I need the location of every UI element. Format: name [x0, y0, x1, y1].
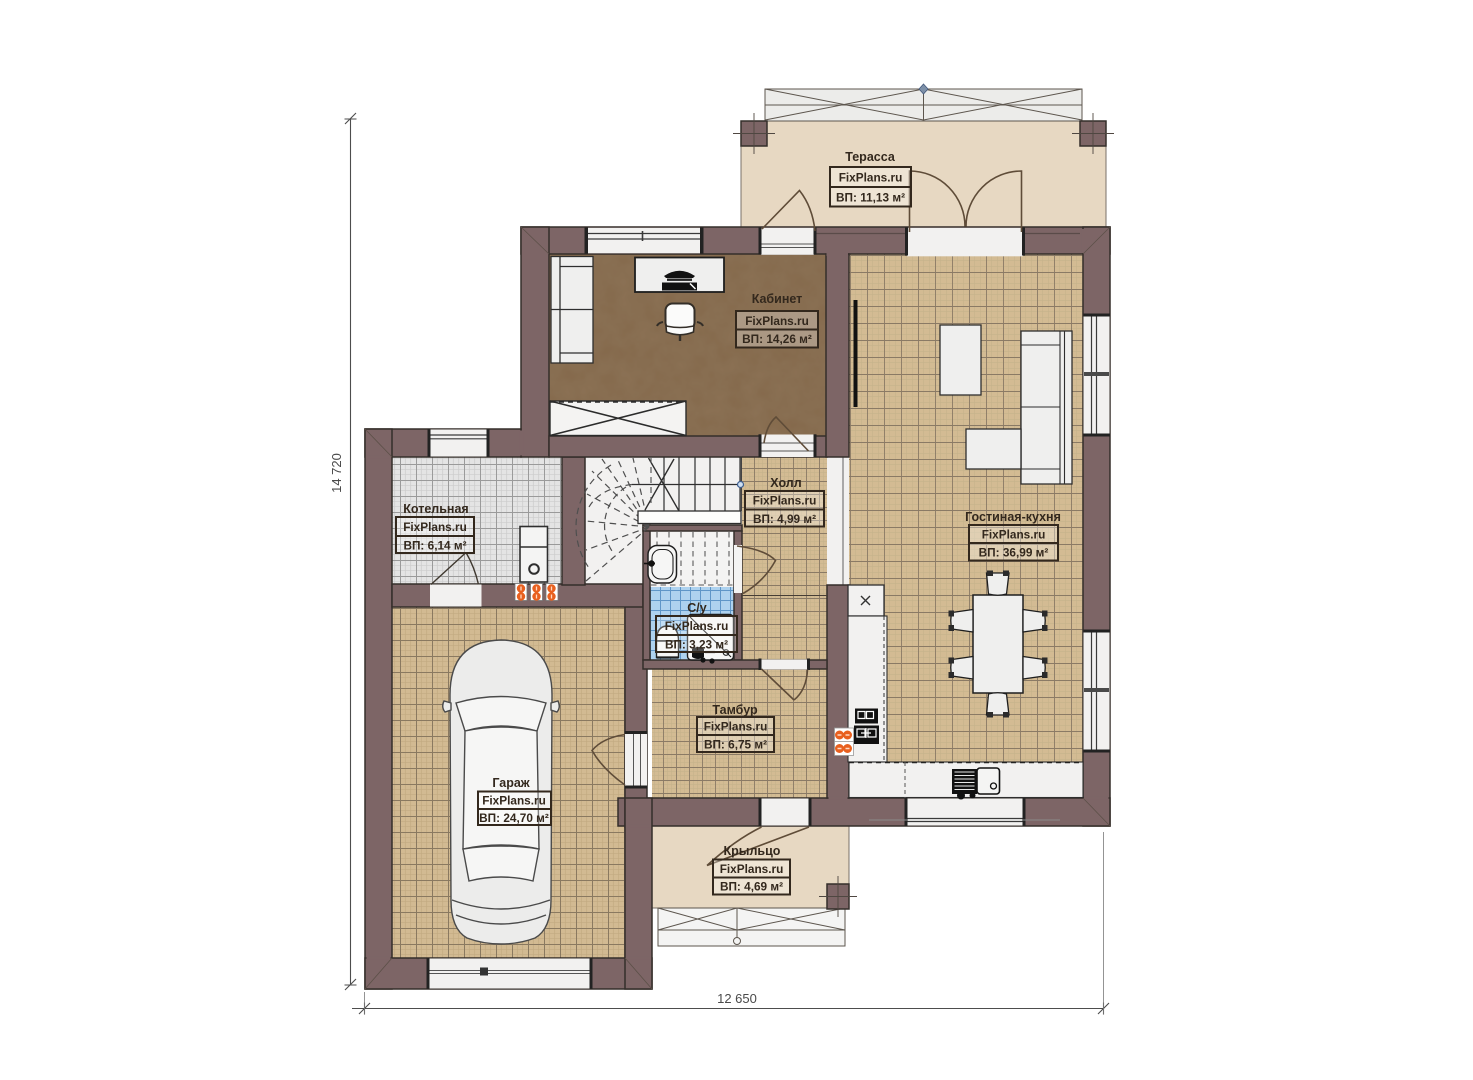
svg-text:FixPlans.ru: FixPlans.ru [482, 794, 546, 808]
svg-text:Холл: Холл [770, 476, 801, 490]
svg-text:ВП: 24,70 м²: ВП: 24,70 м² [479, 811, 549, 825]
svg-text:Котельная: Котельная [403, 502, 468, 516]
svg-text:С/у: С/у [687, 601, 707, 615]
svg-text:FixPlans.ru: FixPlans.ru [839, 171, 903, 185]
svg-text:FixPlans.ru: FixPlans.ru [720, 862, 784, 876]
svg-text:Крыльцо: Крыльцо [724, 844, 781, 858]
svg-text:FixPlans.ru: FixPlans.ru [403, 520, 467, 534]
svg-text:ВП: 6,75 м²: ВП: 6,75 м² [704, 738, 767, 752]
svg-text:ВП: 14,26 м²: ВП: 14,26 м² [742, 332, 812, 346]
svg-text:12 650: 12 650 [717, 991, 757, 1006]
svg-text:14 720: 14 720 [329, 453, 344, 493]
svg-text:ВП: 4,99 м²: ВП: 4,99 м² [753, 512, 816, 526]
svg-text:ВП: 6,14 м²: ВП: 6,14 м² [403, 539, 466, 553]
svg-text:FixPlans.ru: FixPlans.ru [665, 619, 729, 633]
svg-text:ВП: 36,99 м²: ВП: 36,99 м² [979, 546, 1049, 560]
svg-text:FixPlans.ru: FixPlans.ru [704, 720, 768, 734]
svg-text:Терасса: Терасса [845, 150, 896, 164]
svg-text:ВП: 11,13 м²: ВП: 11,13 м² [836, 191, 905, 205]
svg-text:ВП: 4,69 м²: ВП: 4,69 м² [720, 880, 783, 894]
svg-text:Гараж: Гараж [492, 776, 529, 790]
svg-text:Гостиная-кухня: Гостиная-кухня [965, 510, 1061, 524]
svg-text:FixPlans.ru: FixPlans.ru [753, 494, 817, 508]
svg-text:FixPlans.ru: FixPlans.ru [982, 528, 1046, 542]
svg-text:Кабинет: Кабинет [752, 292, 803, 306]
svg-text:Тамбур: Тамбур [712, 703, 758, 717]
svg-text:ВП: 3,23 м²: ВП: 3,23 м² [665, 638, 728, 652]
svg-text:FixPlans.ru: FixPlans.ru [745, 314, 809, 328]
